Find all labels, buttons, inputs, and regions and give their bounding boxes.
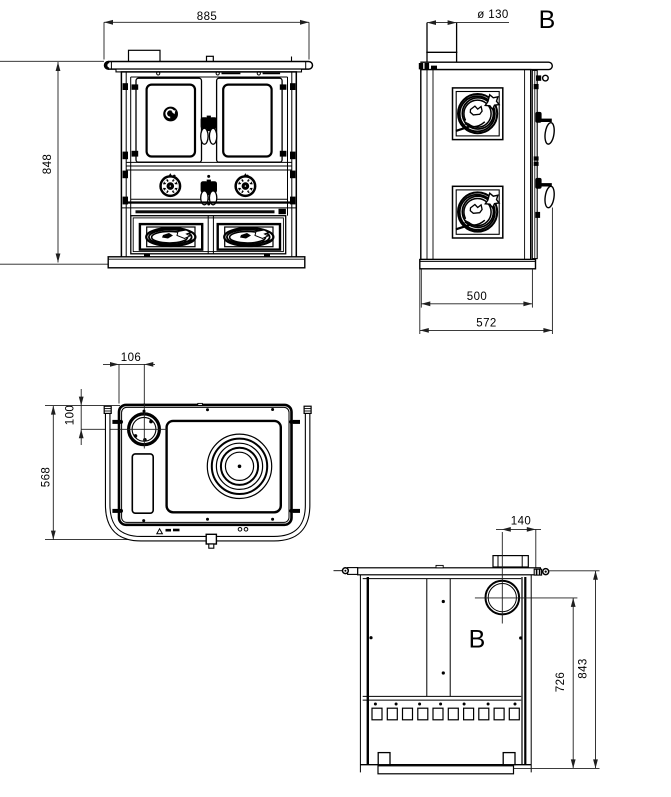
svg-text:100: 100 <box>65 405 77 425</box>
svg-text:106: 106 <box>121 352 141 364</box>
svg-text:B: B <box>469 626 486 654</box>
svg-text:572: 572 <box>476 318 496 330</box>
svg-text:568: 568 <box>41 467 53 487</box>
svg-text:848: 848 <box>42 154 54 174</box>
svg-text:843: 843 <box>578 658 590 678</box>
svg-text:B: B <box>539 6 556 34</box>
svg-text:500: 500 <box>467 291 487 303</box>
svg-text:140: 140 <box>511 516 531 528</box>
svg-text:ø 130: ø 130 <box>477 9 508 21</box>
svg-text:726: 726 <box>555 672 567 692</box>
svg-text:885: 885 <box>197 11 217 23</box>
